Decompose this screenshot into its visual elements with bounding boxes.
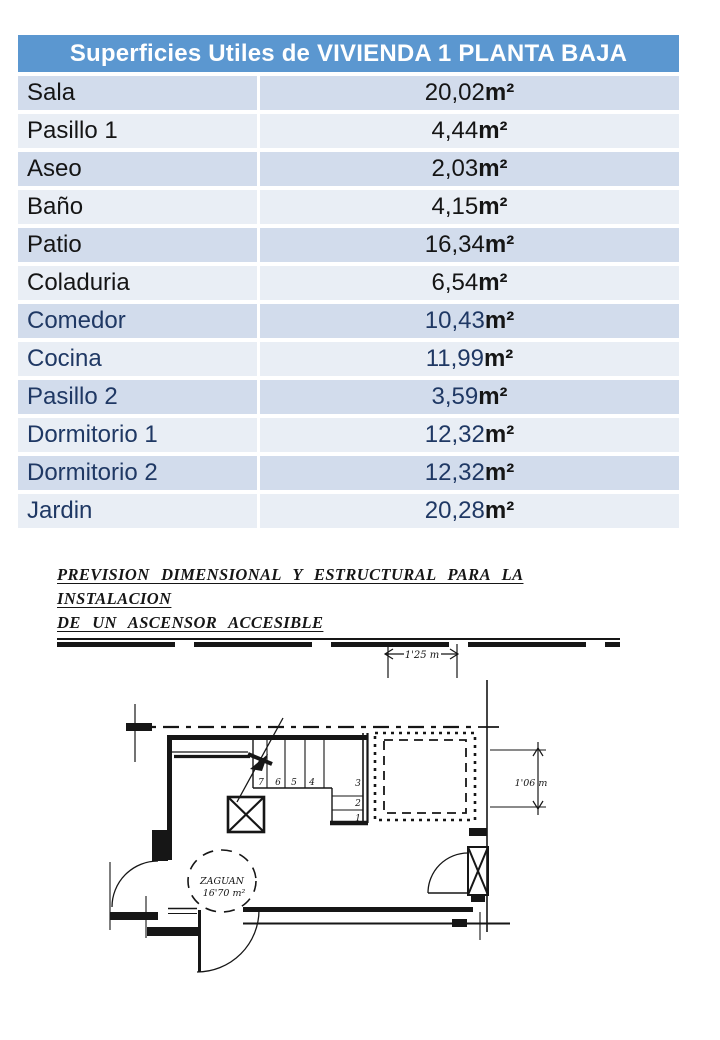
area-unit: m² — [485, 459, 514, 487]
floor-plan: 1'25 m 1'06 m — [0, 540, 720, 1010]
step-number-3: 3 — [355, 779, 361, 789]
room-label: Dormitorio 2 — [18, 456, 257, 490]
room-label: Cocina — [18, 342, 257, 376]
room-area: 3,59 m² — [260, 380, 679, 414]
column-box-left — [228, 797, 264, 832]
right-door-swing-arc — [428, 853, 468, 893]
entry-wall-block-1 — [110, 912, 158, 920]
interior-door — [197, 910, 259, 972]
table-row: Aseo2,03 m² — [18, 152, 679, 186]
area-unit: m² — [485, 421, 514, 449]
right-jamb-bottom — [471, 895, 485, 902]
slide: Superficies Utiles de VIVIENDA 1 PLANTA … — [0, 0, 720, 1040]
column-x-mark — [228, 797, 264, 832]
table-body: Sala20,02 m²Pasillo 14,44 m²Aseo2,03 m²B… — [18, 76, 679, 528]
area-value: 16,34 — [425, 231, 485, 259]
area-value: 10,43 — [425, 307, 485, 335]
room-area: 16,34 m² — [260, 228, 679, 262]
area-value: 6,54 — [431, 269, 478, 297]
area-unit: m² — [485, 497, 514, 525]
area-value: 4,44 — [431, 117, 478, 145]
room-area: 2,03 m² — [260, 152, 679, 186]
step-number-7: 7 — [258, 778, 264, 788]
elevator-shaft-outer — [375, 733, 475, 820]
step-number-1: 1 — [355, 814, 361, 824]
stair-direction-line — [237, 718, 283, 802]
room-area: 6,54 m² — [260, 266, 679, 300]
room-area: 4,15m² — [260, 190, 679, 224]
wall-corner-block — [126, 723, 152, 731]
room-label: Comedor — [18, 304, 257, 338]
room-label: Pasillo 1 — [18, 114, 257, 148]
area-value: 4,15 — [431, 193, 478, 221]
table-row: Pasillo 23,59 m² — [18, 380, 679, 414]
room-area: 11,99 m² — [260, 342, 679, 376]
zaguan-label: ZAGUAN 16'70 m² — [188, 850, 256, 912]
area-value: 3,59 — [431, 383, 478, 411]
elevator-shaft-inner — [384, 740, 466, 813]
room-label: Pasillo 2 — [18, 380, 257, 414]
area-value: 20,28 — [425, 497, 485, 525]
room-area: 4,44 m² — [260, 114, 679, 148]
table-title: Superficies Utiles de VIVIENDA 1 PLANTA … — [70, 40, 627, 68]
door-jamb-block — [152, 830, 168, 861]
area-value: 11,99 — [426, 345, 484, 373]
column-x-mark-right — [468, 847, 488, 895]
table-row: Patio16,34 m² — [18, 228, 679, 262]
entrance-door-swing-arc — [112, 861, 158, 907]
room-area: 20,28 m² — [260, 494, 679, 528]
zaguan-room-name: ZAGUAN — [199, 876, 245, 887]
walls — [110, 680, 510, 940]
table-row: Comedor10,43 m² — [18, 304, 679, 338]
room-label: Baño — [18, 190, 257, 224]
table-row: Baño4,15m² — [18, 190, 679, 224]
areas-table: Superficies Utiles de VIVIENDA 1 PLANTA … — [18, 35, 679, 532]
room-label: Dormitorio 1 — [18, 418, 257, 452]
area-value: 12,32 — [425, 459, 485, 487]
area-unit: m² — [478, 193, 507, 221]
room-area: 10,43 m² — [260, 304, 679, 338]
table-header: Superficies Utiles de VIVIENDA 1 PLANTA … — [18, 35, 679, 72]
table-row: Pasillo 14,44 m² — [18, 114, 679, 148]
right-door — [428, 828, 488, 902]
area-value: 2,03 — [431, 155, 478, 183]
area-unit: m² — [478, 269, 507, 297]
room-area: 12,32 m² — [260, 456, 679, 490]
table-row: Jardin20,28 m² — [18, 494, 679, 528]
elevator-shaft — [375, 733, 475, 820]
dimension-right: 1'06 m — [490, 742, 547, 815]
step-number-2: 2 — [354, 799, 361, 809]
step-number-5: 5 — [291, 778, 297, 788]
dimension-right-label: 1'06 m — [515, 778, 548, 789]
dimension-top: 1'25 m — [385, 644, 458, 678]
entry-wall-block-2 — [147, 927, 200, 936]
entrance-door — [112, 861, 158, 907]
room-label: Aseo — [18, 152, 257, 186]
area-unit: m² — [478, 383, 507, 411]
step-number-4: 4 — [308, 778, 315, 788]
area-unit: m² — [478, 155, 507, 183]
table-row: Cocina11,99 m² — [18, 342, 679, 376]
interior-door-swing-arc — [197, 910, 259, 972]
step-number-6: 6 — [275, 778, 281, 788]
table-row: Dormitorio 112,32 m² — [18, 418, 679, 452]
right-jamb-top — [469, 828, 487, 836]
area-unit: m² — [485, 231, 514, 259]
area-value: 12,32 — [425, 421, 485, 449]
room-label: Sala — [18, 76, 257, 110]
dimension-top-label: 1'25 m — [405, 650, 440, 661]
room-label: Coladuria — [18, 266, 257, 300]
area-unit: m² — [485, 79, 514, 107]
room-area: 12,32 m² — [260, 418, 679, 452]
table-row: Coladuria6,54 m² — [18, 266, 679, 300]
area-unit: m² — [484, 345, 513, 373]
room-label: Patio — [18, 228, 257, 262]
room-area: 20,02 m² — [260, 76, 679, 110]
staircase: 7 6 5 4 3 2 1 — [237, 718, 368, 824]
area-unit: m² — [478, 117, 507, 145]
room-label: Jardin — [18, 494, 257, 528]
area-unit: m² — [485, 307, 514, 335]
table-row: Sala20,02 m² — [18, 76, 679, 110]
area-value: 20,02 — [425, 79, 485, 107]
bottom-wall-block — [452, 919, 467, 927]
table-row: Dormitorio 212,32 m² — [18, 456, 679, 490]
zaguan-room-area: 16'70 m² — [203, 888, 246, 899]
